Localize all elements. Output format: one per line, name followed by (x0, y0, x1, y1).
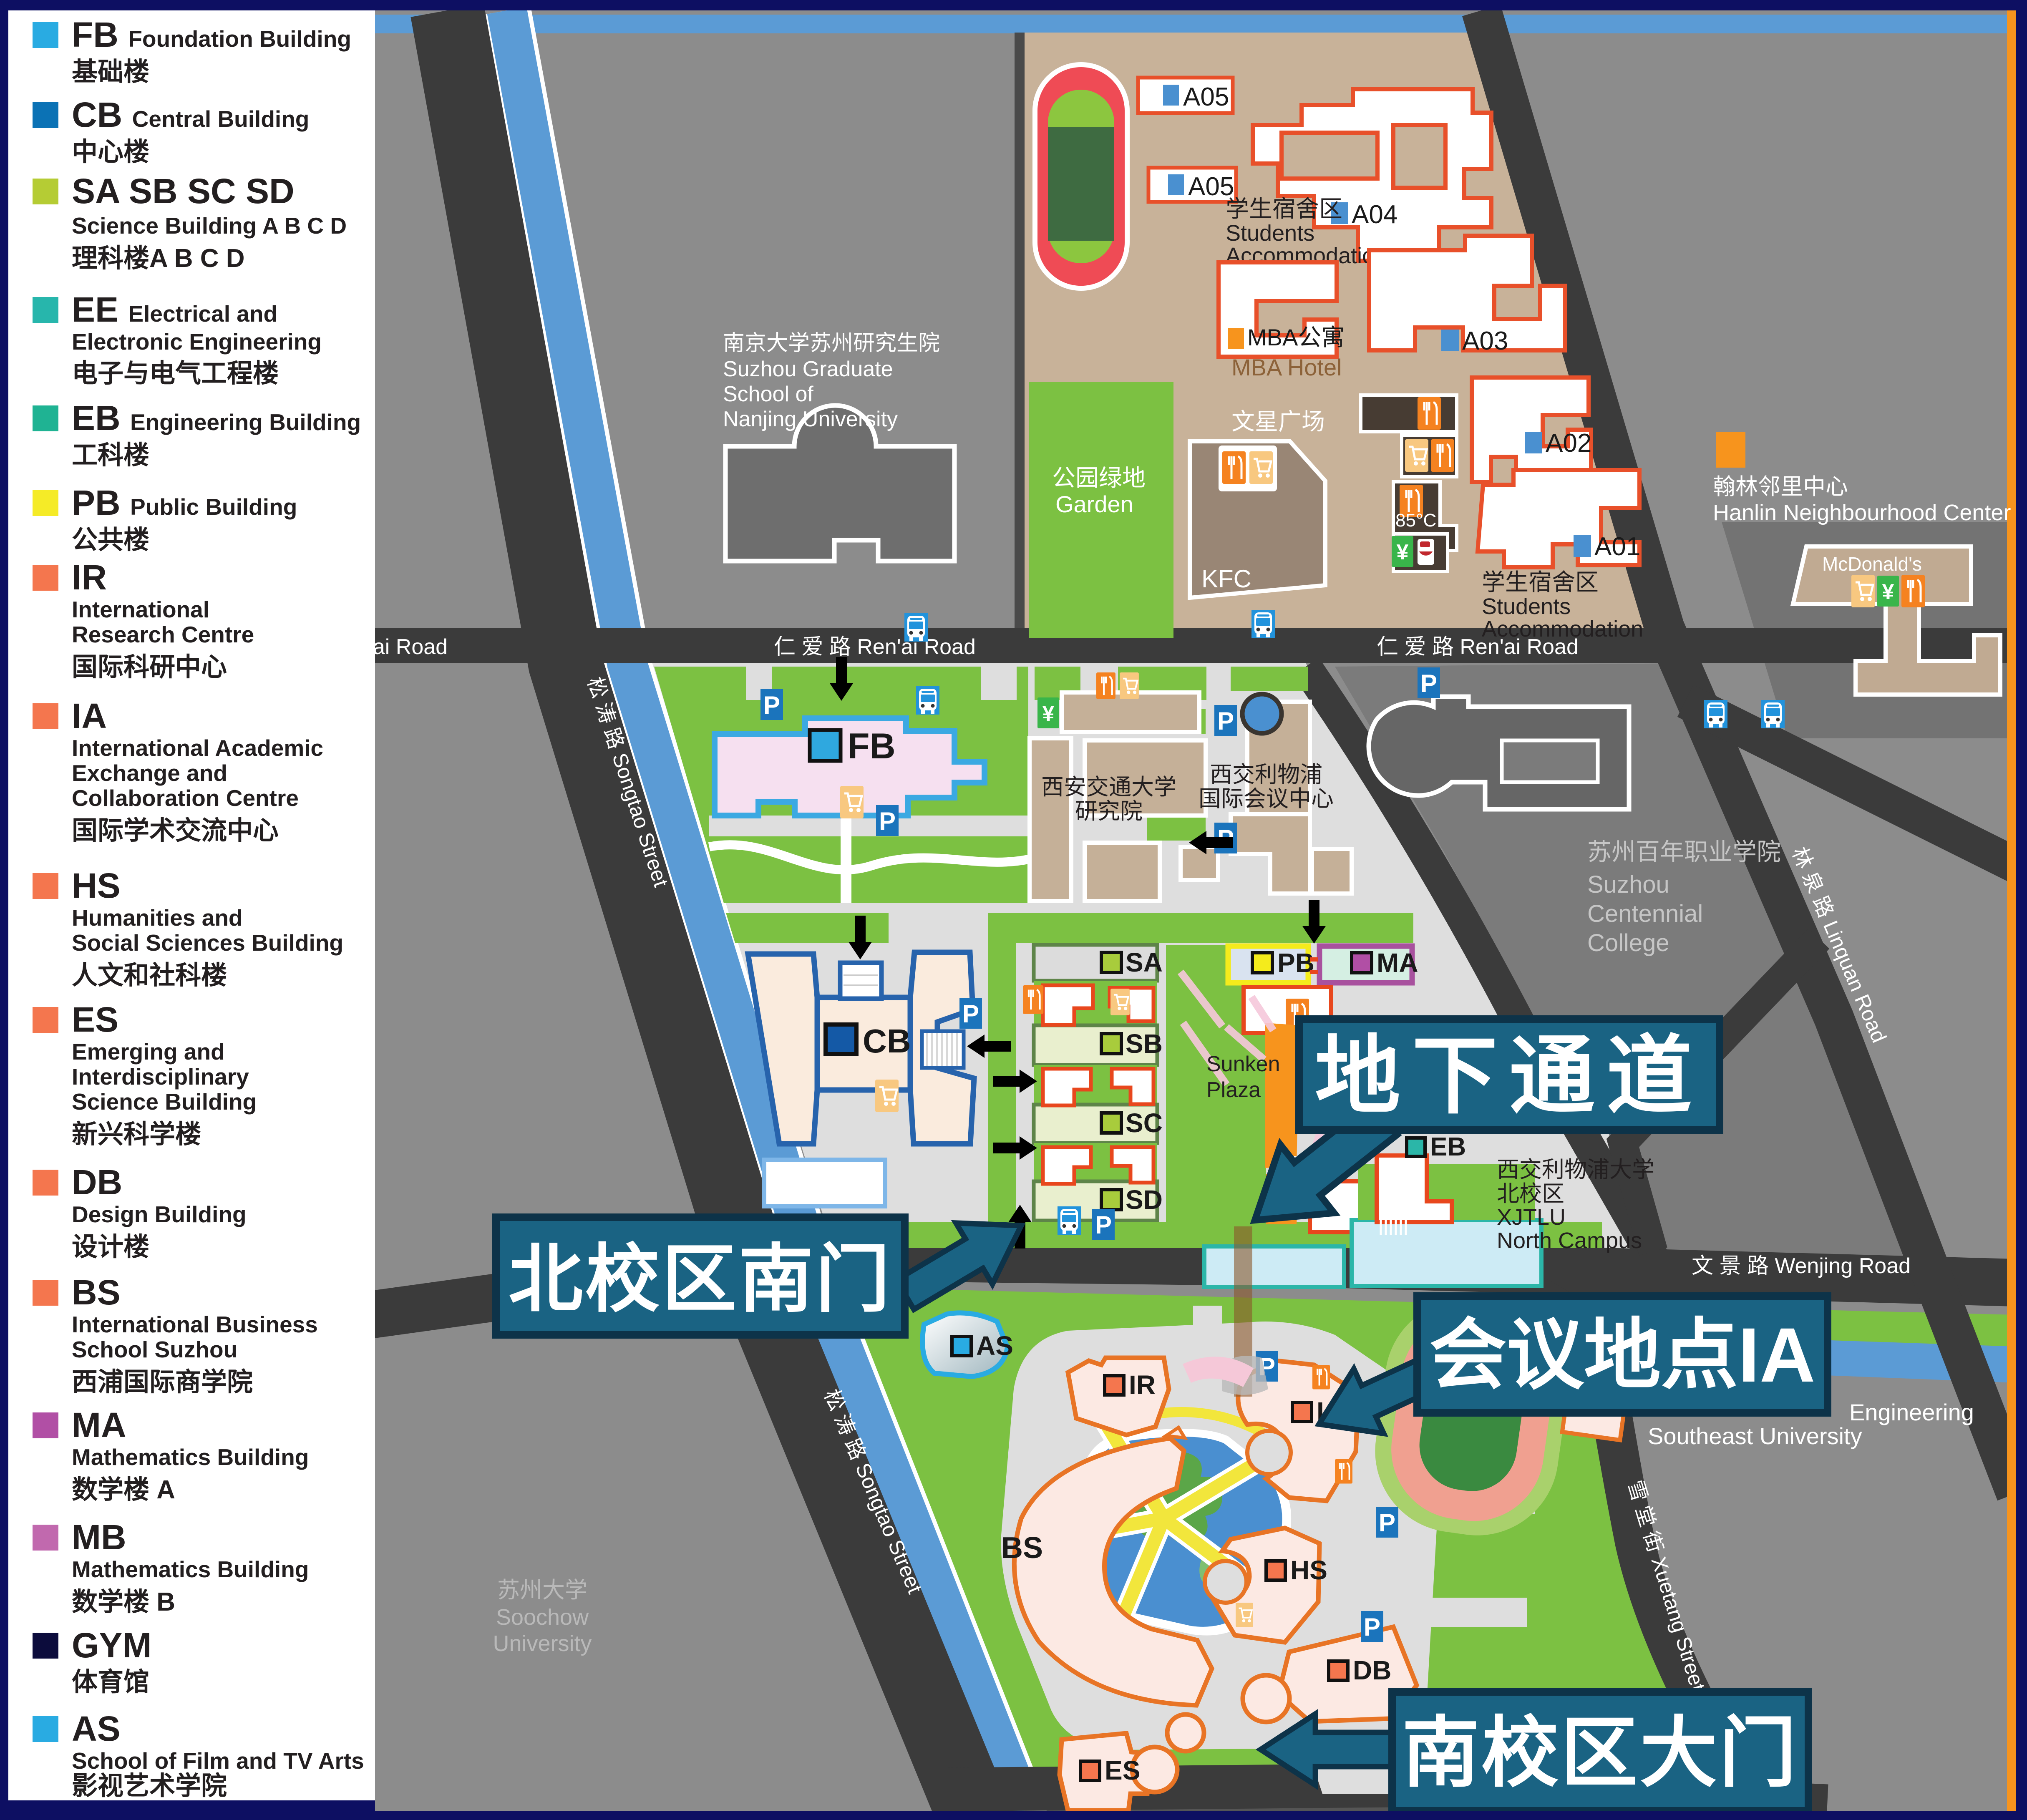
svg-text:International Academic: International Academic (72, 735, 323, 761)
svg-text:西交利物浦大学: 西交利物浦大学 (1497, 1157, 1654, 1182)
svg-text:新兴科学楼: 新兴科学楼 (72, 1120, 201, 1149)
svg-text:电子与电气工程楼: 电子与电气工程楼 (72, 359, 279, 388)
svg-text:A03: A03 (1462, 327, 1508, 355)
svg-text:MBA Hotel: MBA Hotel (1231, 354, 1342, 380)
svg-text:McDonald's: McDonald's (1822, 553, 1922, 575)
svg-text:IR: IR (72, 558, 107, 597)
svg-text:XJTLU: XJTLU (1497, 1205, 1566, 1230)
svg-text:设计楼: 设计楼 (72, 1233, 149, 1261)
svg-text:Students: Students (1482, 594, 1571, 619)
svg-text:Research Centre: Research Centre (72, 622, 254, 647)
svg-text:ES: ES (72, 1000, 118, 1039)
svg-text:Science Building: Science Building (72, 1089, 257, 1115)
svg-text:南校区大门: 南校区大门 (1402, 1710, 1798, 1796)
svg-text:DB: DB (1353, 1655, 1391, 1685)
svg-text:Plaza: Plaza (1206, 1078, 1261, 1102)
svg-text:西浦国际商学院: 西浦国际商学院 (72, 1368, 253, 1397)
svg-text:Nanjing University: Nanjing University (723, 407, 898, 431)
svg-text:HS: HS (72, 866, 121, 905)
svg-text:Garden: Garden (1055, 491, 1133, 517)
svg-text:AS: AS (976, 1331, 1013, 1361)
svg-text:Social Sciences Building: Social Sciences Building (72, 930, 343, 956)
svg-text:BS: BS (1001, 1531, 1043, 1565)
svg-text:Centennial: Centennial (1587, 900, 1703, 927)
svg-text:学生宿舍区: 学生宿舍区 (1226, 196, 1342, 222)
svg-text:北校区: 北校区 (1497, 1181, 1564, 1206)
svg-text:文 景 路 Wenjing Road: 文 景 路 Wenjing Road (1692, 1254, 1911, 1278)
svg-text:仁 爱 路 Ren'ai Road: 仁 爱 路 Ren'ai Road (1377, 635, 1579, 659)
svg-text:人文和社科楼: 人文和社科楼 (72, 961, 227, 990)
svg-text:MB: MB (72, 1518, 126, 1557)
svg-text:学生宿舍区: 学生宿舍区 (1482, 569, 1599, 595)
svg-text:Emerging and: Emerging and (72, 1039, 225, 1065)
svg-text:苏州大学: 苏州大学 (497, 1578, 587, 1603)
svg-text:International: International (72, 597, 209, 622)
svg-text:Design Building: Design Building (72, 1201, 247, 1227)
svg-text:Mathematics Building: Mathematics Building (72, 1444, 309, 1470)
svg-text:MA: MA (1377, 948, 1418, 978)
svg-text:A04: A04 (1352, 200, 1397, 229)
svg-text:Engineering: Engineering (1849, 1399, 1974, 1425)
svg-text:AS: AS (72, 1709, 121, 1748)
svg-text:Students: Students (1226, 221, 1314, 246)
svg-text:PB: PB (1277, 948, 1314, 978)
svg-text:SA: SA (1126, 947, 1163, 977)
svg-text:Collaboration Centre: Collaboration Centre (72, 785, 299, 811)
svg-text:Sunken: Sunken (1206, 1052, 1280, 1076)
svg-text:University: University (493, 1631, 592, 1656)
svg-text:GYM: GYM (72, 1626, 151, 1665)
svg-text:数学楼 A: 数学楼 A (72, 1475, 175, 1504)
svg-text:A02: A02 (1546, 429, 1591, 458)
svg-text:理科楼A B C D: 理科楼A B C D (72, 244, 245, 273)
svg-text:SD: SD (1126, 1185, 1163, 1215)
svg-text:Mathematics Building: Mathematics Building (72, 1556, 309, 1582)
svg-text:会议地点IA: 会议地点IA (1430, 1312, 1815, 1398)
svg-text:MA: MA (72, 1405, 126, 1445)
svg-text:85°C: 85°C (1395, 510, 1436, 531)
svg-text:Electronic Engineering: Electronic Engineering (72, 329, 322, 355)
svg-text:基础楼: 基础楼 (72, 58, 149, 86)
svg-text:Suzhou Graduate: Suzhou Graduate (723, 357, 893, 381)
svg-text:International Business: International Business (72, 1312, 318, 1337)
svg-text:IA: IA (72, 696, 107, 735)
svg-text:IR: IR (1129, 1370, 1156, 1400)
svg-text:Exchange and: Exchange and (72, 760, 227, 786)
svg-text:Interdisciplinary: Interdisciplinary (72, 1064, 249, 1090)
svg-text:A05: A05 (1183, 83, 1229, 111)
svg-text:SA SB SC SD: SA SB SC SD (72, 171, 295, 211)
svg-text:仁 爱 路 Ren'ai Road: 仁 爱 路 Ren'ai Road (774, 635, 976, 659)
svg-text:影视艺术学院: 影视艺术学院 (72, 1772, 227, 1800)
svg-text:地下通道: 地下通道 (1315, 1028, 1704, 1124)
svg-text:KFC: KFC (1201, 565, 1251, 593)
svg-text:Soochow: Soochow (496, 1605, 589, 1630)
svg-text:A01: A01 (1594, 532, 1640, 561)
svg-text:公共楼: 公共楼 (72, 526, 149, 554)
svg-text:SC: SC (1126, 1108, 1163, 1138)
svg-text:Humanities and: Humanities and (72, 905, 243, 931)
svg-text:North Campus: North Campus (1497, 1228, 1642, 1253)
svg-text:Science Building A B C D: Science Building A B C D (72, 213, 347, 239)
svg-text:西安交通大学: 西安交通大学 (1041, 775, 1176, 800)
svg-text:苏州百年职业学院: 苏州百年职业学院 (1587, 838, 1781, 866)
svg-text:南京大学苏州研究生院: 南京大学苏州研究生院 (723, 331, 940, 355)
svg-text:School Suzhou: School Suzhou (72, 1337, 237, 1362)
svg-text:国际学术交流中心: 国际学术交流中心 (72, 816, 279, 845)
svg-text:ES: ES (1105, 1755, 1140, 1785)
svg-text:SB: SB (1126, 1029, 1163, 1059)
svg-text:Southeast University: Southeast University (1648, 1423, 1862, 1449)
svg-text:BS: BS (72, 1273, 121, 1312)
svg-text:数学楼 B: 数学楼 B (72, 1588, 175, 1616)
svg-text:翰林邻里中心: 翰林邻里中心 (1713, 474, 1848, 499)
svg-text:MBA公寓: MBA公寓 (1247, 324, 1345, 350)
svg-text:西交利物浦: 西交利物浦 (1210, 762, 1322, 787)
svg-text:FB: FB (848, 726, 896, 766)
svg-text:CB: CB (863, 1022, 911, 1060)
svg-text:国际会议中心: 国际会议中心 (1199, 786, 1334, 811)
svg-text:School of: School of (723, 382, 813, 406)
svg-text:Hanlin Neighbourhood Center: Hanlin Neighbourhood Center (1713, 500, 2011, 525)
svg-text:HS: HS (1290, 1555, 1327, 1585)
svg-text:DB: DB (72, 1163, 122, 1202)
svg-text:中心楼: 中心楼 (72, 138, 149, 166)
svg-text:EB: EB (1430, 1133, 1466, 1161)
svg-text:公园绿地: 公园绿地 (1052, 465, 1146, 491)
svg-text:工科楼: 工科楼 (72, 441, 149, 470)
svg-text:北校区南门: 北校区南门 (509, 1238, 892, 1321)
svg-text:研究院: 研究院 (1075, 799, 1143, 824)
svg-text:文星广场: 文星广场 (1231, 408, 1325, 435)
svg-text:体育馆: 体育馆 (72, 1668, 149, 1697)
svg-text:国际科研中心: 国际科研中心 (72, 653, 227, 682)
svg-text:College: College (1587, 929, 1669, 957)
svg-text:Suzhou: Suzhou (1587, 871, 1669, 898)
svg-text:School of Film and TV Arts: School of Film and TV Arts (72, 1748, 364, 1774)
